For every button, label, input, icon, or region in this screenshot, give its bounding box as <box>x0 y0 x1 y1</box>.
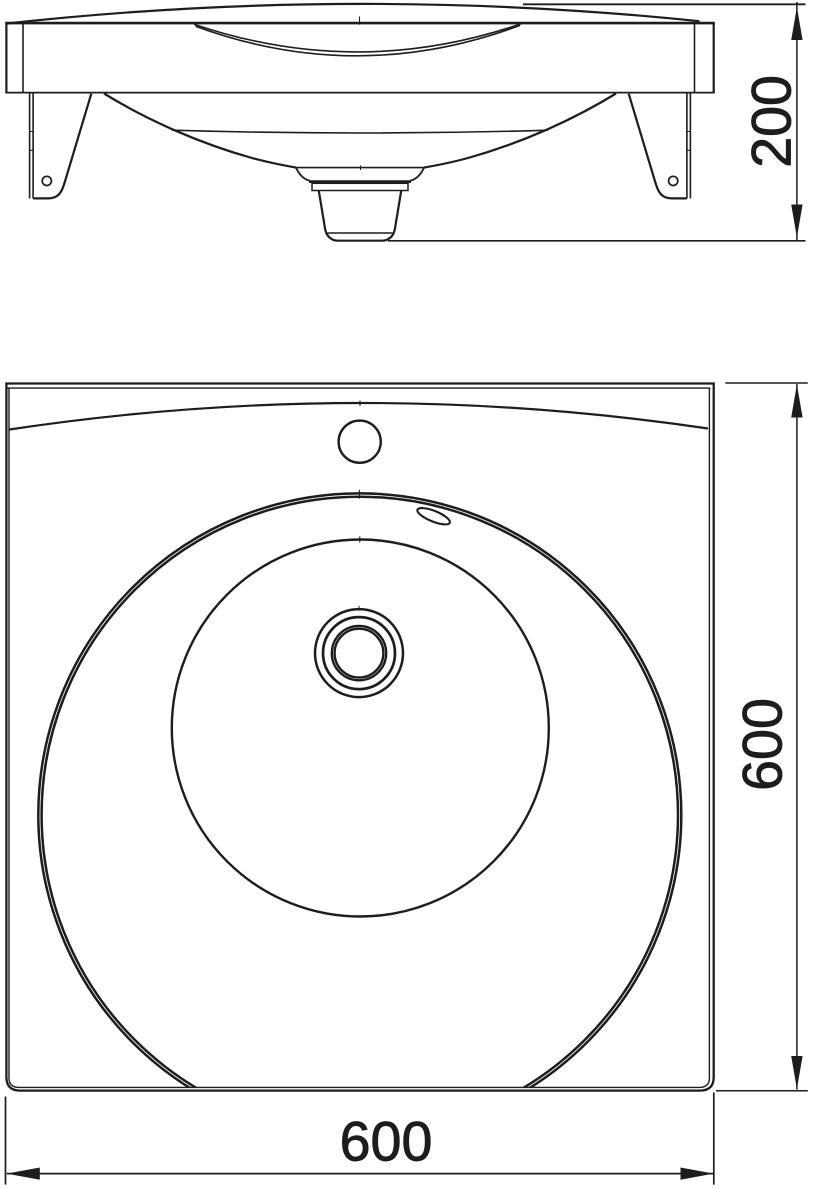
svg-text:200: 200 <box>740 75 802 168</box>
svg-text:600: 600 <box>731 698 793 791</box>
svg-text:600: 600 <box>340 1110 433 1172</box>
